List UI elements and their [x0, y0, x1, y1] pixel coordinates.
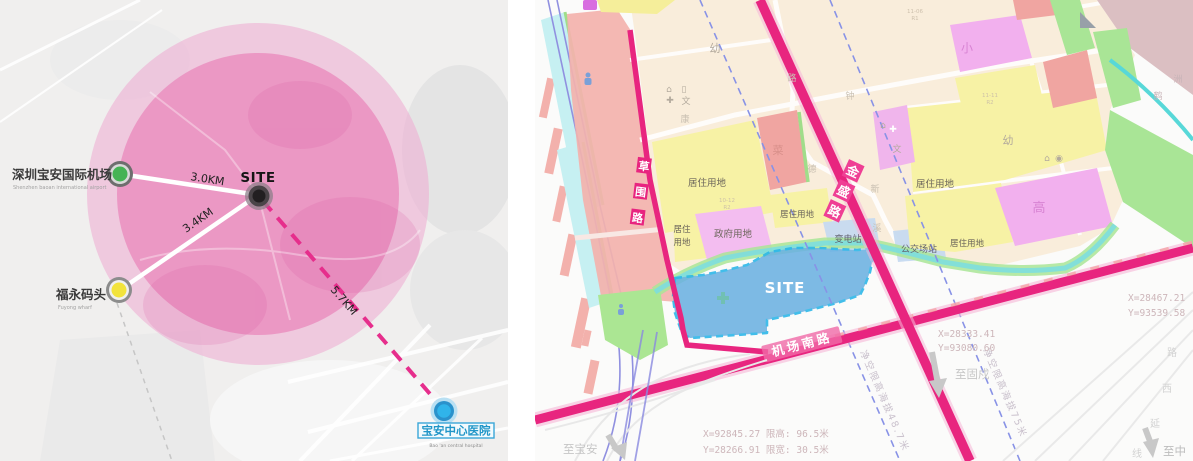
site-label: SITE	[765, 279, 806, 297]
svg-text:X=28467.21: X=28467.21	[1128, 293, 1185, 304]
svg-text:◉: ◉	[1055, 154, 1063, 164]
wharf-label-en: Fuyong wharf	[58, 305, 92, 311]
left-radius-map-panel: 3.0KM 3.4KM 5.7KM SITE 深圳宝安国际机场 Shenzhen…	[0, 0, 508, 461]
bus-station-label: 公交场站	[901, 243, 937, 255]
svg-text:路: 路	[787, 72, 796, 84]
svg-text:围: 围	[634, 185, 647, 199]
svg-text:幼: 幼	[1003, 134, 1014, 147]
svg-text:Y=93539.58: Y=93539.58	[1128, 308, 1185, 319]
svg-text:康: 康	[680, 113, 689, 125]
substation-label: 变电站	[834, 233, 861, 245]
government-label: 政府用地	[714, 228, 753, 240]
site-analysis-figure: 3.0KM 3.4KM 5.7KM SITE 深圳宝安国际机场 Shenzhen…	[0, 0, 1193, 461]
svg-text:X=28333.41: X=28333.41	[938, 329, 995, 340]
svg-text:11-06: 11-06	[907, 9, 923, 15]
svg-text:11-11: 11-11	[982, 93, 998, 99]
svg-text:R2: R2	[723, 205, 730, 211]
svg-text:⌂: ⌂	[880, 121, 886, 131]
hospital-label-zh: 宝安中心医院	[422, 424, 491, 438]
svg-text:X=92845.27 限高: 96.5米: X=92845.27 限高: 96.5米	[703, 428, 829, 440]
right-zoning-map-panel: SITE 草 围 路 金 盛 路 机场南路 居住用地 居住用地 居	[535, 0, 1193, 461]
to-zhong-label: 至中	[1163, 444, 1186, 458]
svg-text:德: 德	[807, 163, 816, 175]
svg-text:R2: R2	[986, 100, 993, 106]
residential-label-1: 居住用地	[688, 177, 727, 189]
airport-label-zh: 深圳宝安国际机场	[12, 167, 112, 182]
airport-label-en: Shenzhen baoan international airport	[13, 185, 107, 191]
residential-label-4: 居住用地	[950, 238, 985, 249]
to-baoan-label: 至宝安	[563, 442, 598, 456]
to-gushu-label: 至固戍	[955, 367, 990, 381]
residential-label-2: 居住用地	[780, 209, 815, 220]
svg-text:Y=28266.91 限宽: 30.5米: Y=28266.91 限宽: 30.5米	[703, 444, 829, 456]
purple-parcel	[583, 0, 597, 10]
svg-text:高: 高	[1032, 200, 1045, 216]
svg-text:新: 新	[870, 183, 879, 195]
hospital-label-en: Bao 'an central hospital	[429, 443, 482, 449]
svg-text:溪: 溪	[872, 222, 881, 234]
svg-text:菜: 菜	[773, 144, 784, 157]
svg-text:小: 小	[961, 41, 973, 55]
svg-text:西: 西	[1162, 384, 1172, 395]
svg-text:钟: 钟	[845, 90, 854, 102]
svg-text:Y=93080.60: Y=93080.60	[938, 343, 995, 354]
svg-text:✚: ✚	[666, 96, 674, 106]
svg-text:线: 线	[1132, 447, 1142, 460]
residential-label-3: 居住用地	[916, 178, 955, 190]
svg-text:洲: 洲	[1173, 74, 1182, 85]
svg-text:文: 文	[681, 95, 690, 107]
svg-text:▯: ▯	[682, 85, 687, 95]
svg-text:文: 文	[892, 143, 901, 155]
residential-label-5b: 用地	[673, 237, 691, 248]
svg-text:幼: 幼	[710, 42, 721, 55]
svg-text:延: 延	[1150, 418, 1160, 430]
svg-text:鹤: 鹤	[1153, 90, 1162, 102]
svg-text:10-12: 10-12	[719, 198, 735, 204]
wharf-marker	[106, 277, 132, 303]
hospital-marker	[431, 398, 458, 425]
svg-text:✚: ✚	[889, 125, 897, 135]
svg-text:⌂: ⌂	[666, 85, 672, 95]
svg-text:⌂: ⌂	[1044, 154, 1050, 164]
svg-text:路: 路	[1167, 346, 1177, 359]
svg-text:R1: R1	[911, 16, 918, 22]
svg-text:草: 草	[638, 159, 651, 174]
wharf-label-zh: 福永码头	[55, 287, 107, 302]
residential-label-5a: 居住	[673, 224, 691, 235]
site-dot	[245, 182, 273, 210]
